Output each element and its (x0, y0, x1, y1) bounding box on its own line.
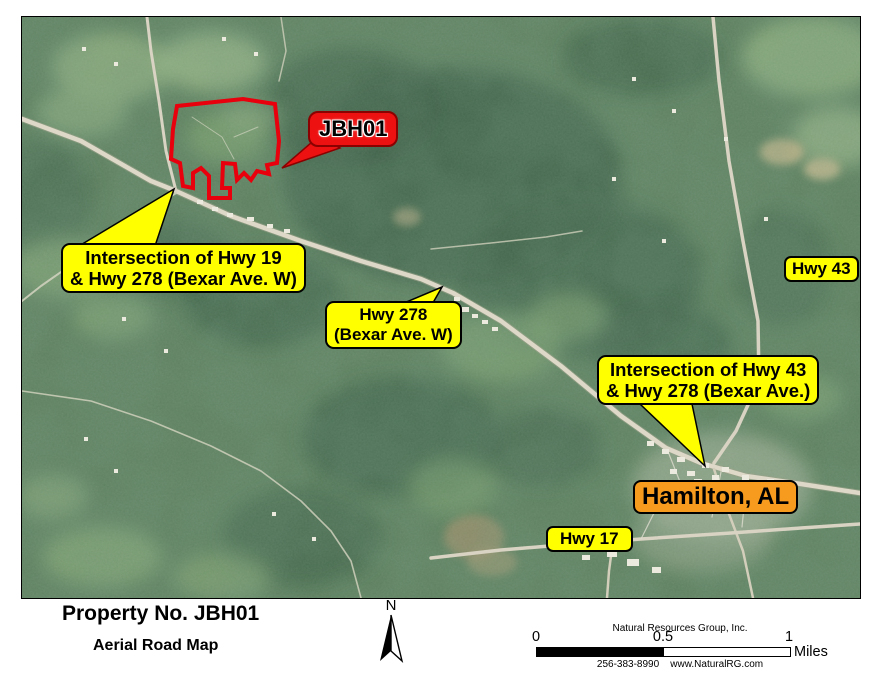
company-info: Natural Resources Group, Inc. 256-383-89… (553, 599, 807, 680)
callout-line: Hwy 278 (334, 305, 453, 325)
scale-tick-1: 1 (781, 629, 797, 645)
callout-line: Intersection of Hwy 43 (606, 359, 810, 380)
aerial-road-map-page: JBH01 Intersection of Hwy 19 & Hwy 278 (… (0, 0, 880, 680)
scale-bar (536, 647, 791, 657)
company-contact: 256-383-8990 www.NaturalRG.com (553, 659, 807, 671)
callout-line: & Hwy 278 (Bexar Ave. W) (70, 268, 297, 289)
scale-tick-0: 0 (528, 629, 544, 645)
scale-units-label: Miles (794, 644, 828, 660)
callout-line: Intersection of Hwy 19 (70, 247, 297, 268)
north-arrow-icon (374, 613, 408, 665)
callout-line: & Hwy 278 (Bexar Ave.) (606, 380, 810, 401)
callout-line: (Bexar Ave. W) (334, 325, 453, 345)
scale-bar-filled-half (537, 648, 664, 656)
hwy17-label: Hwy 17 (546, 526, 633, 552)
hwy278-callout: Hwy 278 (Bexar Ave. W) (325, 301, 462, 349)
property-id-callout: JBH01 (308, 111, 398, 147)
scale-tick-half: 0.5 (648, 629, 678, 645)
hwy43-278-intersection-callout: Intersection of Hwy 43 & Hwy 278 (Bexar … (597, 355, 819, 405)
hwy19-278-intersection-callout: Intersection of Hwy 19 & Hwy 278 (Bexar … (61, 243, 306, 293)
map-subtitle: Aerial Road Map (93, 637, 218, 655)
company-name: Natural Resources Group, Inc. (553, 623, 807, 635)
map-title: Property No. JBH01 (62, 602, 259, 626)
north-arrow: N (374, 598, 408, 670)
north-arrow-label: N (374, 598, 408, 613)
hwy43-label: Hwy 43 (784, 256, 859, 282)
hamilton-city-label: Hamilton, AL (633, 480, 798, 514)
